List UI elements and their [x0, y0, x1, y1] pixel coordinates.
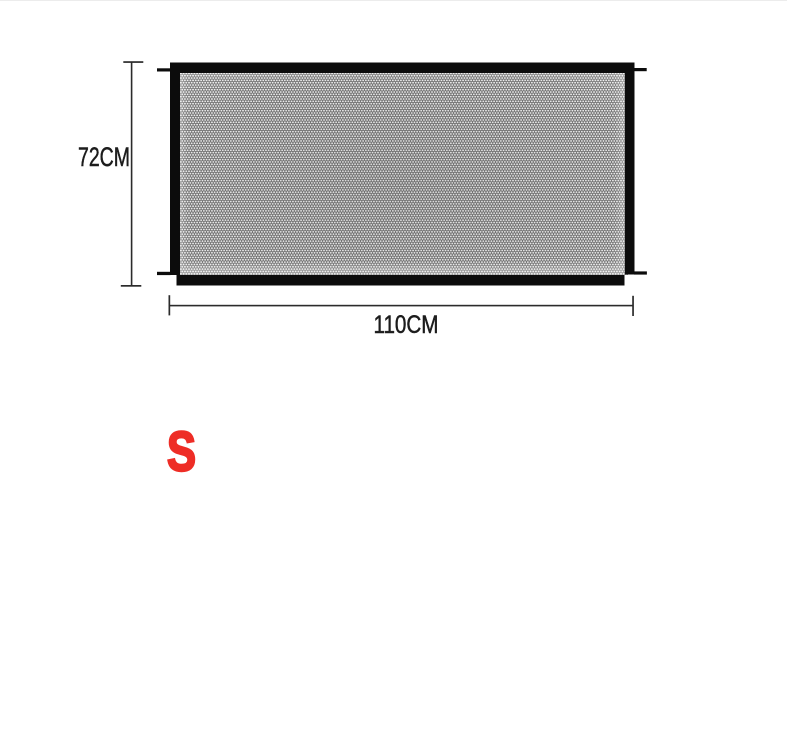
svg-text:110CM: 110CM: [374, 312, 439, 339]
svg-text:72CM: 72CM: [78, 142, 130, 172]
svg-text:S: S: [167, 419, 196, 482]
